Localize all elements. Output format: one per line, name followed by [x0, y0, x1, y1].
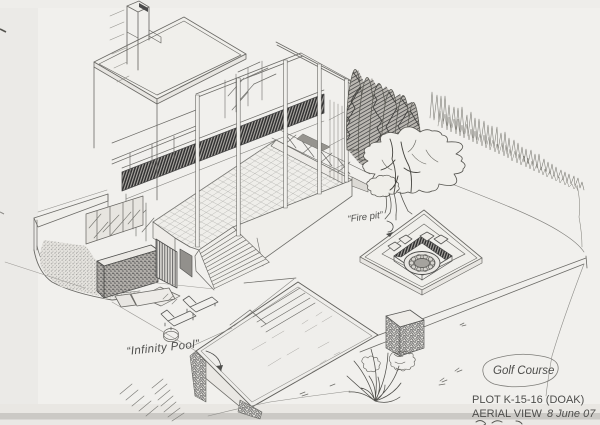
svg-text:Golf Course: Golf Course — [493, 365, 554, 377]
svg-text:8 June 07: 8 June 07 — [547, 408, 596, 420]
svg-text:PLOT K-15-16 (DOAK): PLOT K-15-16 (DOAK) — [472, 394, 584, 406]
svg-text:AERIAL VIEW: AERIAL VIEW — [472, 408, 543, 420]
